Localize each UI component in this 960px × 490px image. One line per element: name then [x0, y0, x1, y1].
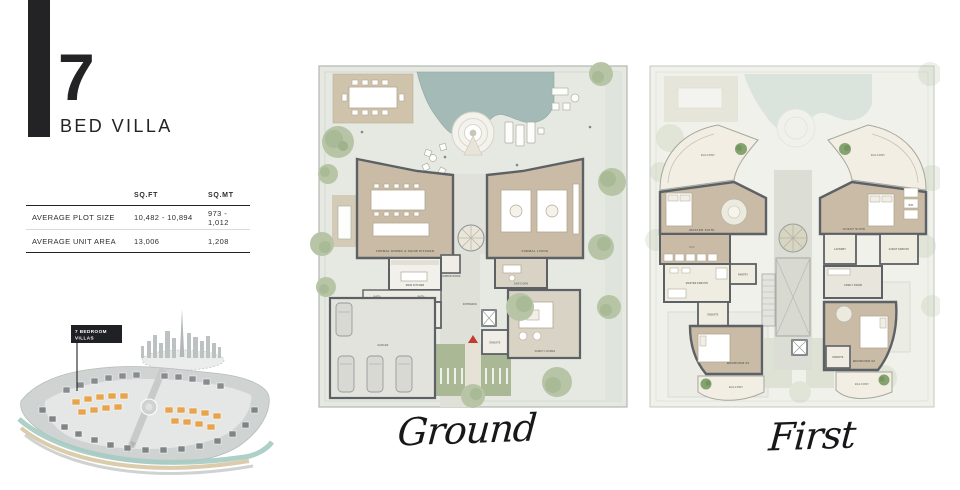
page-title-subtitle: BED VILLA — [60, 116, 173, 137]
formal-living-room: FORMAL LIVING — [487, 159, 583, 258]
room-label: BALCONY — [701, 153, 715, 157]
spec-header-sqmt: SQ.MT — [208, 192, 250, 199]
spec-header-sqft: SQ.FT — [134, 192, 208, 199]
table-row: AVERAGE UNIT AREA 13,006 1,208 — [26, 230, 250, 253]
callout-text-line1: 7 BEDROOM — [75, 329, 107, 334]
site-map: 7 BEDROOM VILLAS — [15, 303, 280, 488]
room-label: BALCONY — [855, 382, 869, 386]
accent-bar — [28, 0, 50, 137]
row-sqmt: 1,208 — [208, 237, 250, 246]
ground-ensuite: ENSUITE — [482, 330, 508, 354]
room-label: FORMAL DINING & SHOW KITCHEN — [376, 249, 434, 253]
elevator — [482, 310, 496, 326]
balcony-plant-icon — [839, 143, 851, 155]
room-label: LAUNDRY — [834, 248, 847, 251]
balcony-plant-icon — [701, 379, 712, 390]
room-label: PANTRY — [738, 274, 748, 277]
city-skyline-icon — [141, 309, 224, 370]
room-label: WIC — [689, 245, 695, 249]
balcony-plant-icon — [735, 143, 747, 155]
brochure-page: 7 BED VILLA SQ.FT SQ.MT AVERAGE PLOT SIZ… — [0, 0, 960, 490]
room-label: DAD'S DEN — [514, 283, 528, 286]
room-label: FORMAL LIVING — [522, 249, 549, 253]
room-label: FAMILY ROOM — [844, 284, 862, 287]
ground-floor-plan: FORMAL DINING & SHOW KITCHEN FORMAL LIVI… — [305, 62, 635, 412]
room-label: GUEST ENSUITE — [889, 249, 910, 251]
room-label: GUEST SUITE — [843, 227, 866, 231]
spec-table: SQ.FT SQ.MT AVERAGE PLOT SIZE 10,482 - 1… — [26, 186, 250, 253]
water-feature-icon — [452, 112, 494, 155]
row-sqft: 13,006 — [134, 237, 208, 246]
room-label: ENSUITE — [832, 357, 843, 359]
outdoor-dining-deck — [333, 74, 413, 123]
garage: GARAGE — [330, 298, 435, 398]
row-label: AVERAGE UNIT AREA — [26, 237, 134, 246]
formal-dining-room: FORMAL DINING & SHOW KITCHEN — [357, 159, 453, 258]
row-label: AVERAGE PLOT SIZE — [26, 213, 134, 222]
first-caption: First — [721, 411, 904, 461]
room-label: MAIN KITCHEN — [406, 284, 425, 287]
room-label: FAMILY LOUNGE — [535, 350, 556, 353]
spiral-staircase — [458, 225, 484, 251]
row-sqmt: 973 - 1,012 — [208, 209, 250, 227]
room-label: WIC — [909, 205, 914, 207]
room-label: ENTRANCE — [463, 303, 477, 306]
room-label: BEDROOM 03 — [727, 361, 749, 365]
main-kitchen: MAIN KITCHEN — [389, 258, 441, 290]
row-sqft: 10,482 - 10,894 — [134, 213, 208, 222]
room-label: POWDER ROOM — [441, 276, 461, 278]
callout-text-line2: VILLAS — [75, 336, 94, 341]
table-row: AVERAGE PLOT SIZE 10,482 - 10,894 973 - … — [26, 206, 250, 230]
room-label: BEDROOM 02 — [853, 359, 875, 363]
spec-table-header-row: SQ.FT SQ.MT — [26, 186, 250, 206]
side-terrace — [332, 195, 357, 247]
room-label: BALCONY — [729, 385, 743, 389]
room-label: BALCONY — [871, 153, 885, 157]
page-title-number: 7 — [58, 44, 95, 110]
first-floor-plan: BALCONY MASTER SUITE WIC MASTER ENSUITE … — [640, 62, 940, 412]
room-label: GARAGE — [378, 344, 389, 347]
balcony-plant-icon — [879, 375, 890, 386]
room-label: MASTER ENSUITE — [686, 282, 709, 285]
ground-caption: Ground — [351, 404, 584, 456]
dads-den: DAD'S DEN — [495, 258, 547, 288]
room-label: ENSUITE — [489, 343, 500, 345]
room-label: MASTER SUITE — [689, 228, 714, 232]
room-label: ENSUITE — [707, 315, 718, 317]
